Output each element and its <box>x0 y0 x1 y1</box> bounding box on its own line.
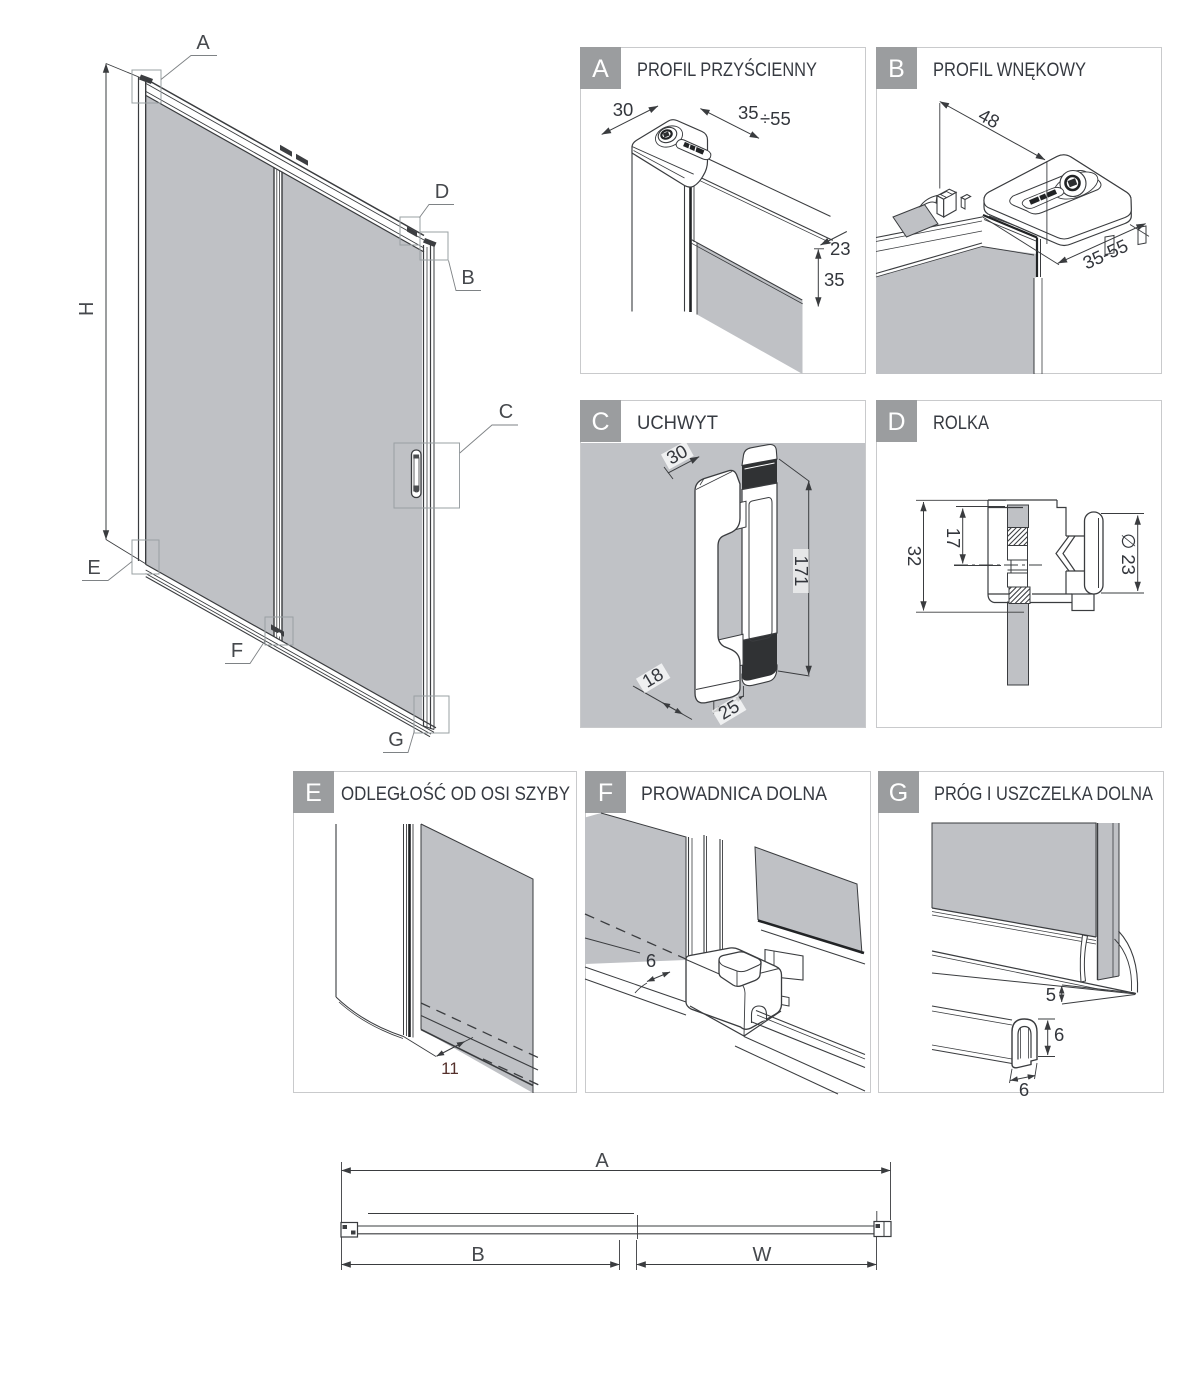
svg-text:11: 11 <box>441 1059 459 1078</box>
svg-text:35: 35 <box>738 102 759 123</box>
svg-text:PRÓG I USZCZELKA DOLNA: PRÓG I USZCZELKA DOLNA <box>934 783 1153 805</box>
svg-text:F: F <box>231 640 243 662</box>
svg-text:E: E <box>87 557 100 579</box>
svg-text:W: W <box>753 1244 772 1266</box>
svg-text:A: A <box>595 1150 609 1172</box>
svg-text:6: 6 <box>1019 1079 1029 1100</box>
svg-text:ROLKA: ROLKA <box>933 413 989 434</box>
svg-text:PROWADNICA DOLNA: PROWADNICA DOLNA <box>641 784 827 805</box>
svg-text:23: 23 <box>830 238 851 259</box>
svg-text:6: 6 <box>1054 1024 1064 1045</box>
svg-text:B: B <box>471 1244 484 1266</box>
svg-text:PROFIL PRZYŚCIENNY: PROFIL PRZYŚCIENNY <box>637 59 817 81</box>
svg-text:D: D <box>887 408 905 436</box>
svg-text:B: B <box>888 55 905 83</box>
svg-text:171: 171 <box>791 556 812 587</box>
svg-text:B: B <box>461 267 474 289</box>
svg-text:PROFIL WNĘKOWY: PROFIL WNĘKOWY <box>933 60 1086 81</box>
svg-text:6: 6 <box>646 950 656 971</box>
svg-text:C: C <box>499 401 513 423</box>
svg-text:∅ 23: ∅ 23 <box>1118 533 1139 575</box>
svg-text:35: 35 <box>824 269 845 290</box>
svg-text:÷55: ÷55 <box>760 108 791 129</box>
svg-text:E: E <box>305 779 322 807</box>
svg-text:C: C <box>591 408 609 436</box>
svg-text:D: D <box>435 181 449 203</box>
svg-text:UCHWYT: UCHWYT <box>637 413 718 434</box>
svg-text:32: 32 <box>904 546 925 567</box>
svg-text:ODLEGŁOŚĆ OD OSI SZYBY: ODLEGŁOŚĆ OD OSI SZYBY <box>341 783 570 805</box>
svg-text:H: H <box>76 302 98 316</box>
svg-text:G: G <box>388 729 404 751</box>
svg-text:A: A <box>592 55 609 83</box>
svg-text:5: 5 <box>1046 984 1056 1005</box>
svg-text:17: 17 <box>943 528 964 549</box>
svg-text:G: G <box>889 779 908 807</box>
svg-text:F: F <box>598 779 613 807</box>
svg-text:30: 30 <box>613 99 634 120</box>
svg-text:A: A <box>196 32 210 54</box>
